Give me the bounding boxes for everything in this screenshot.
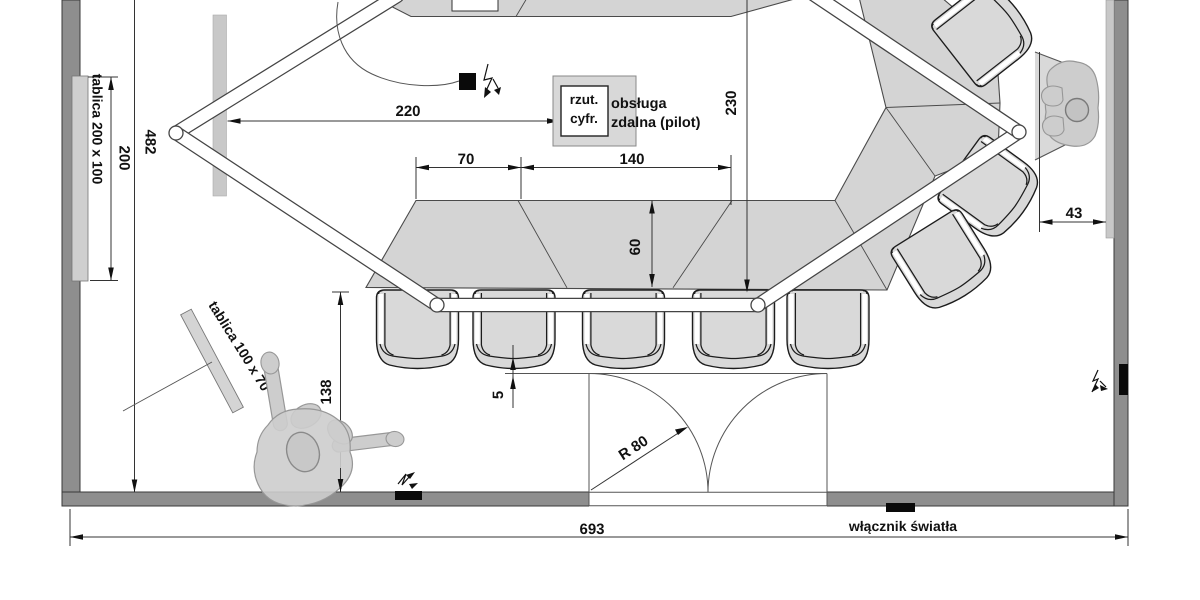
svg-text:482: 482 <box>142 129 159 154</box>
svg-text:obsługa: obsługa <box>611 96 668 112</box>
svg-text:rzut.: rzut. <box>570 92 599 107</box>
svg-text:693: 693 <box>579 521 604 538</box>
svg-text:43: 43 <box>1066 205 1083 222</box>
svg-text:230: 230 <box>723 90 740 115</box>
svg-text:włącznik światła: włącznik światła <box>848 518 957 534</box>
svg-text:220: 220 <box>395 103 420 120</box>
svg-text:140: 140 <box>619 151 644 168</box>
svg-text:zdalna (pilot): zdalna (pilot) <box>611 115 701 131</box>
svg-text:200: 200 <box>116 145 133 170</box>
svg-text:60: 60 <box>627 239 644 256</box>
svg-text:5: 5 <box>490 391 507 399</box>
svg-text:70: 70 <box>458 151 475 168</box>
svg-text:tablica 200 x 100: tablica 200 x 100 <box>90 74 106 185</box>
svg-text:138: 138 <box>318 379 335 404</box>
svg-text:cyfr.: cyfr. <box>570 111 598 126</box>
